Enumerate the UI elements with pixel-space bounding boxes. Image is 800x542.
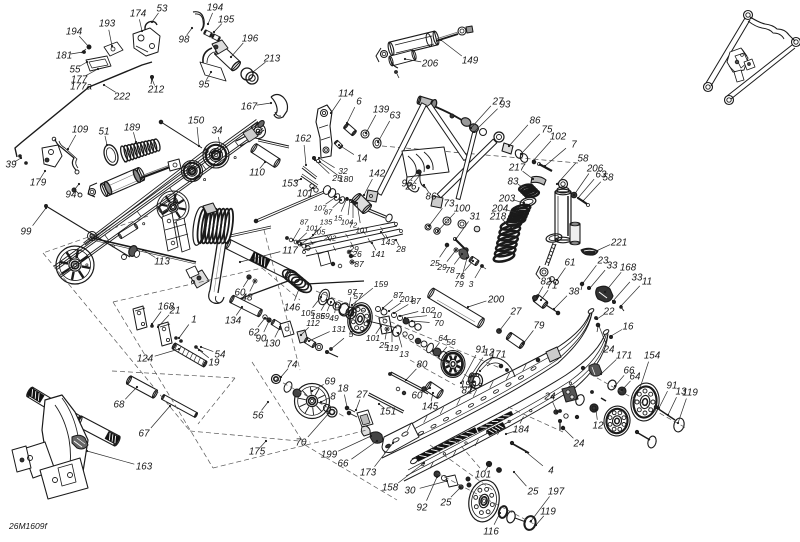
svg-text:58: 58	[603, 173, 614, 184]
svg-text:171: 171	[616, 351, 632, 362]
svg-text:109: 109	[72, 125, 89, 136]
svg-text:19: 19	[209, 358, 220, 369]
svg-text:56: 56	[253, 411, 264, 422]
svg-text:173: 173	[360, 468, 377, 479]
svg-text:25: 25	[440, 498, 452, 509]
svg-text:197: 197	[548, 487, 565, 498]
svg-text:94: 94	[66, 190, 77, 201]
svg-text:159: 159	[374, 279, 388, 289]
svg-text:51: 51	[99, 127, 110, 138]
svg-text:60: 60	[412, 391, 423, 402]
svg-text:179: 179	[30, 178, 47, 189]
svg-text:92: 92	[417, 503, 428, 514]
svg-text:21: 21	[169, 306, 181, 317]
svg-text:184: 184	[513, 425, 530, 436]
svg-text:27: 27	[510, 307, 522, 318]
svg-text:26: 26	[351, 249, 362, 259]
svg-text:4: 4	[548, 466, 554, 477]
svg-text:149: 149	[462, 56, 479, 67]
svg-text:64: 64	[630, 372, 641, 383]
svg-text:1: 1	[191, 315, 196, 326]
svg-text:99: 99	[21, 227, 32, 238]
svg-text:30: 30	[405, 486, 416, 497]
svg-text:200: 200	[487, 295, 505, 306]
svg-text:143: 143	[381, 237, 395, 247]
svg-text:196: 196	[242, 34, 259, 45]
svg-text:12: 12	[593, 421, 604, 432]
svg-text:24: 24	[603, 345, 615, 356]
svg-text:49: 49	[329, 313, 339, 323]
svg-text:119: 119	[682, 388, 698, 399]
svg-text:70: 70	[434, 318, 444, 328]
svg-text:135: 135	[320, 218, 333, 227]
svg-text:78: 78	[445, 265, 455, 275]
svg-text:100: 100	[454, 204, 471, 215]
svg-text:28: 28	[395, 244, 406, 254]
svg-text:222: 222	[113, 92, 131, 103]
svg-text:5: 5	[349, 329, 354, 339]
svg-text:117: 117	[282, 246, 298, 257]
svg-text:66: 66	[338, 459, 349, 470]
svg-text:27: 27	[356, 390, 368, 401]
svg-text:6: 6	[356, 97, 362, 108]
svg-text:31: 31	[470, 212, 481, 223]
svg-text:86: 86	[426, 192, 437, 203]
svg-text:142: 142	[369, 169, 386, 180]
svg-text:199: 199	[321, 450, 338, 461]
svg-text:202: 202	[323, 234, 337, 243]
svg-text:13: 13	[399, 349, 409, 359]
svg-text:141: 141	[371, 249, 385, 259]
svg-text:116: 116	[483, 527, 499, 538]
svg-text:194: 194	[207, 3, 224, 14]
svg-text:145: 145	[422, 402, 439, 413]
svg-text:213: 213	[263, 54, 281, 65]
svg-text:83: 83	[508, 177, 519, 188]
svg-text:69: 69	[325, 377, 336, 388]
svg-text:195: 195	[218, 15, 235, 26]
svg-text:34: 34	[212, 126, 223, 137]
svg-text:87: 87	[324, 208, 333, 217]
svg-text:14: 14	[357, 154, 368, 165]
svg-text:206: 206	[421, 59, 439, 70]
svg-text:221: 221	[610, 238, 627, 249]
svg-text:22: 22	[603, 307, 615, 318]
svg-text:68: 68	[114, 400, 125, 411]
svg-text:189: 189	[124, 123, 141, 134]
svg-text:119: 119	[385, 343, 399, 353]
svg-text:48: 48	[242, 293, 253, 304]
svg-text:181: 181	[56, 51, 72, 62]
svg-text:146: 146	[284, 303, 301, 314]
svg-text:56: 56	[446, 337, 456, 347]
svg-text:101: 101	[297, 189, 313, 200]
svg-text:95: 95	[199, 80, 210, 91]
svg-text:102: 102	[550, 132, 567, 143]
svg-text:67: 67	[139, 429, 150, 440]
svg-text:11: 11	[642, 277, 652, 288]
svg-text:151: 151	[380, 407, 396, 418]
svg-text:194: 194	[66, 27, 83, 38]
svg-text:87: 87	[411, 296, 421, 306]
svg-text:112: 112	[306, 318, 320, 328]
svg-text:33: 33	[607, 261, 618, 272]
svg-text:134: 134	[225, 316, 242, 327]
svg-text:113: 113	[154, 257, 170, 268]
svg-text:139: 139	[373, 105, 390, 116]
svg-text:63: 63	[390, 111, 401, 122]
svg-text:61: 61	[565, 258, 576, 269]
svg-text:101: 101	[356, 226, 369, 235]
svg-text:93: 93	[500, 100, 511, 111]
svg-text:101: 101	[475, 470, 491, 481]
svg-text:119: 119	[540, 507, 556, 518]
svg-text:110: 110	[249, 168, 265, 179]
svg-text:154: 154	[644, 351, 661, 362]
svg-text:114: 114	[338, 89, 354, 100]
svg-text:79: 79	[534, 321, 545, 332]
svg-text:193: 193	[99, 19, 116, 30]
svg-text:26M1609f: 26M1609f	[8, 521, 48, 531]
svg-text:26: 26	[405, 182, 417, 193]
svg-text:167: 167	[241, 102, 258, 113]
svg-text:70: 70	[296, 438, 307, 449]
svg-text:171: 171	[490, 350, 506, 361]
svg-text:175: 175	[249, 447, 266, 458]
svg-text:24: 24	[544, 392, 556, 403]
svg-text:87: 87	[354, 259, 364, 269]
svg-text:98: 98	[179, 35, 190, 46]
svg-text:38: 38	[569, 287, 580, 298]
svg-text:131: 131	[332, 324, 346, 334]
svg-text:130: 130	[264, 339, 281, 350]
svg-text:71: 71	[547, 281, 558, 292]
svg-text:25: 25	[527, 487, 539, 498]
svg-text:158: 158	[382, 483, 399, 494]
svg-text:212: 212	[147, 85, 165, 96]
svg-text:86: 86	[530, 116, 541, 127]
svg-text:163: 163	[136, 462, 153, 473]
svg-text:80: 80	[417, 360, 428, 371]
svg-text:7: 7	[571, 140, 577, 151]
svg-text:180: 180	[339, 174, 353, 184]
svg-text:16: 16	[623, 322, 634, 333]
svg-text:101: 101	[366, 333, 380, 343]
svg-text:177a: 177a	[70, 82, 92, 93]
svg-text:150: 150	[188, 116, 205, 127]
svg-text:3: 3	[469, 279, 474, 289]
svg-text:174: 174	[130, 9, 147, 20]
svg-text:162: 162	[295, 134, 312, 145]
svg-text:24: 24	[573, 439, 585, 450]
svg-text:8: 8	[330, 392, 336, 403]
svg-text:18: 18	[338, 384, 349, 395]
svg-text:79: 79	[454, 279, 464, 289]
svg-text:124: 124	[137, 354, 154, 365]
